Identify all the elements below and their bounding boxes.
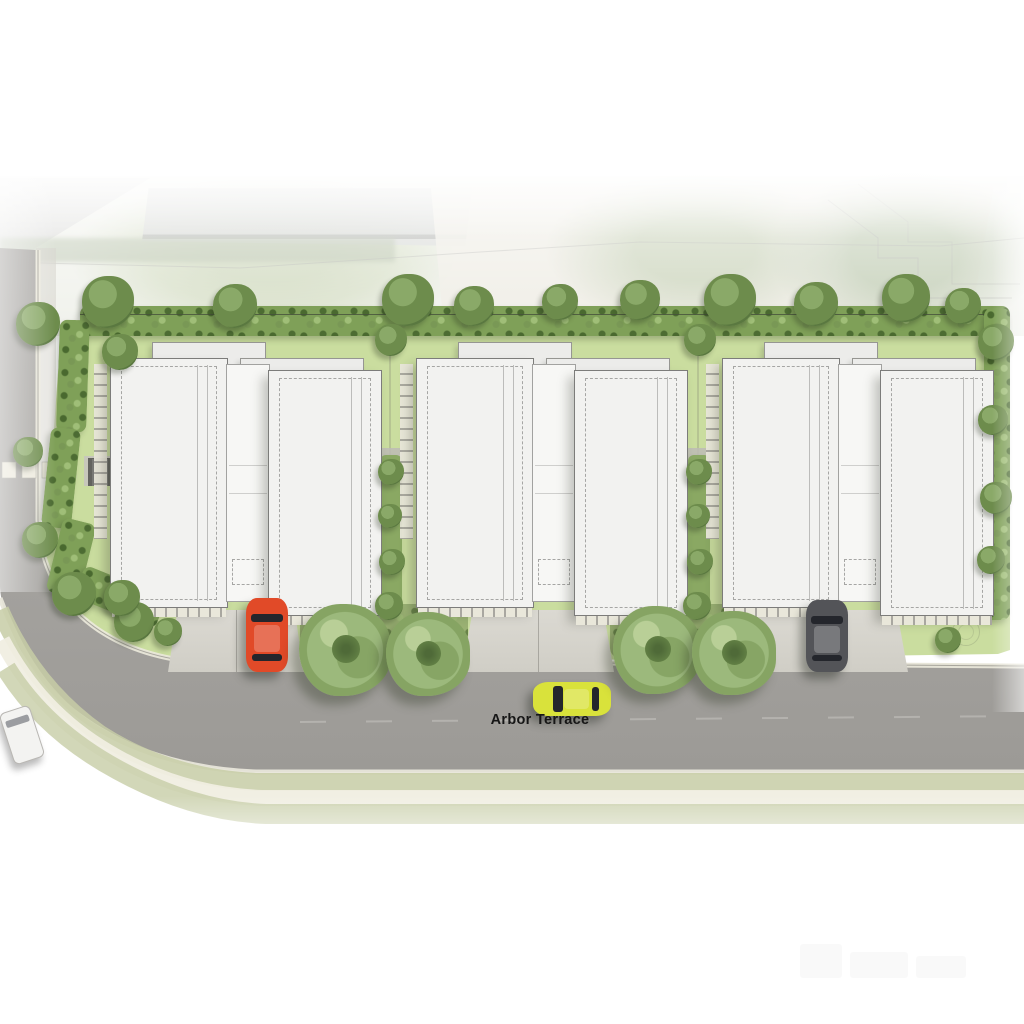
watermark (800, 944, 990, 994)
rear-window (592, 687, 599, 711)
main-roof (268, 370, 382, 616)
main-roof (574, 370, 688, 616)
roof-line (535, 465, 573, 466)
rear-window (812, 655, 842, 661)
roof-line (197, 365, 198, 601)
grey-car (806, 600, 848, 672)
yellow-car (533, 682, 611, 716)
central-link-roof (532, 364, 576, 602)
street-tree (299, 604, 391, 696)
roof-line (819, 365, 820, 601)
roof-line (361, 377, 362, 609)
front-paver-strip (882, 616, 992, 625)
roof-line (503, 365, 504, 601)
townhouse-block-1 (92, 342, 384, 622)
main-roof (110, 358, 228, 608)
roof-line (809, 365, 810, 601)
windshield (5, 714, 30, 728)
roof-line (229, 465, 267, 466)
roof-line (229, 493, 267, 494)
rear-window (252, 654, 282, 661)
left-boundary-hedge (56, 320, 90, 433)
townhouse-block-2 (398, 342, 690, 622)
street-tree (692, 611, 776, 695)
windshield (251, 614, 283, 622)
central-link-roof (226, 364, 270, 602)
site-plan-canvas: Arbor Terrace (0, 0, 1024, 1024)
roof-line (841, 465, 879, 466)
windshield (553, 686, 562, 712)
street-name-label: Arbor Terrace (458, 712, 622, 728)
roof-line (351, 377, 352, 609)
roof-line (667, 377, 668, 609)
roof-line (841, 493, 879, 494)
roof-line (657, 377, 658, 609)
roof-line (535, 493, 573, 494)
central-link-roof (838, 364, 882, 602)
roof-line (973, 377, 974, 609)
main-roof (880, 370, 994, 616)
red-car (246, 598, 288, 672)
roof-line (963, 377, 964, 609)
street-tree (613, 606, 701, 694)
main-roof (416, 358, 534, 608)
roof-line (207, 365, 208, 601)
roof-line (513, 365, 514, 601)
townhouse-block-3 (704, 342, 996, 622)
street-tree (386, 612, 470, 696)
main-roof (722, 358, 840, 608)
windshield (811, 616, 843, 624)
side-paver-strip (94, 364, 107, 539)
